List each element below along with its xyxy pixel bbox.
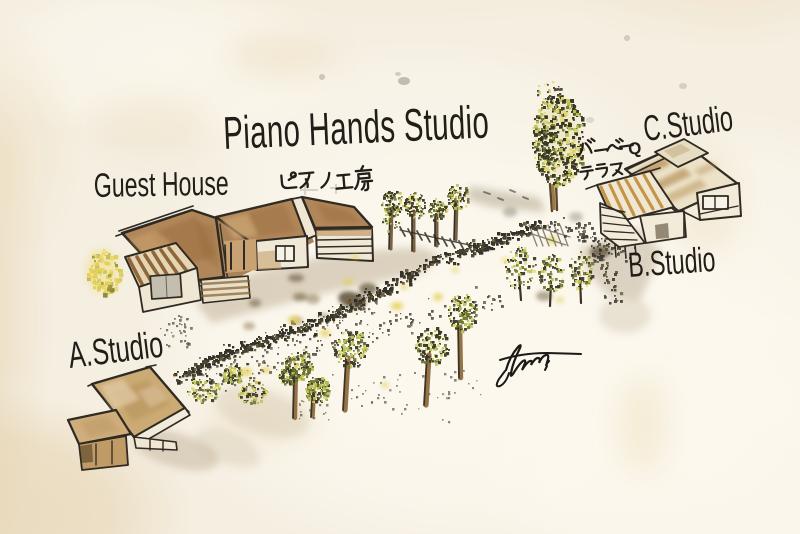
svg-text:Q: Q bbox=[627, 138, 643, 159]
svg-text:Guest House: Guest House bbox=[93, 165, 229, 205]
svg-text:B.Studio: B.Studio bbox=[627, 240, 717, 285]
